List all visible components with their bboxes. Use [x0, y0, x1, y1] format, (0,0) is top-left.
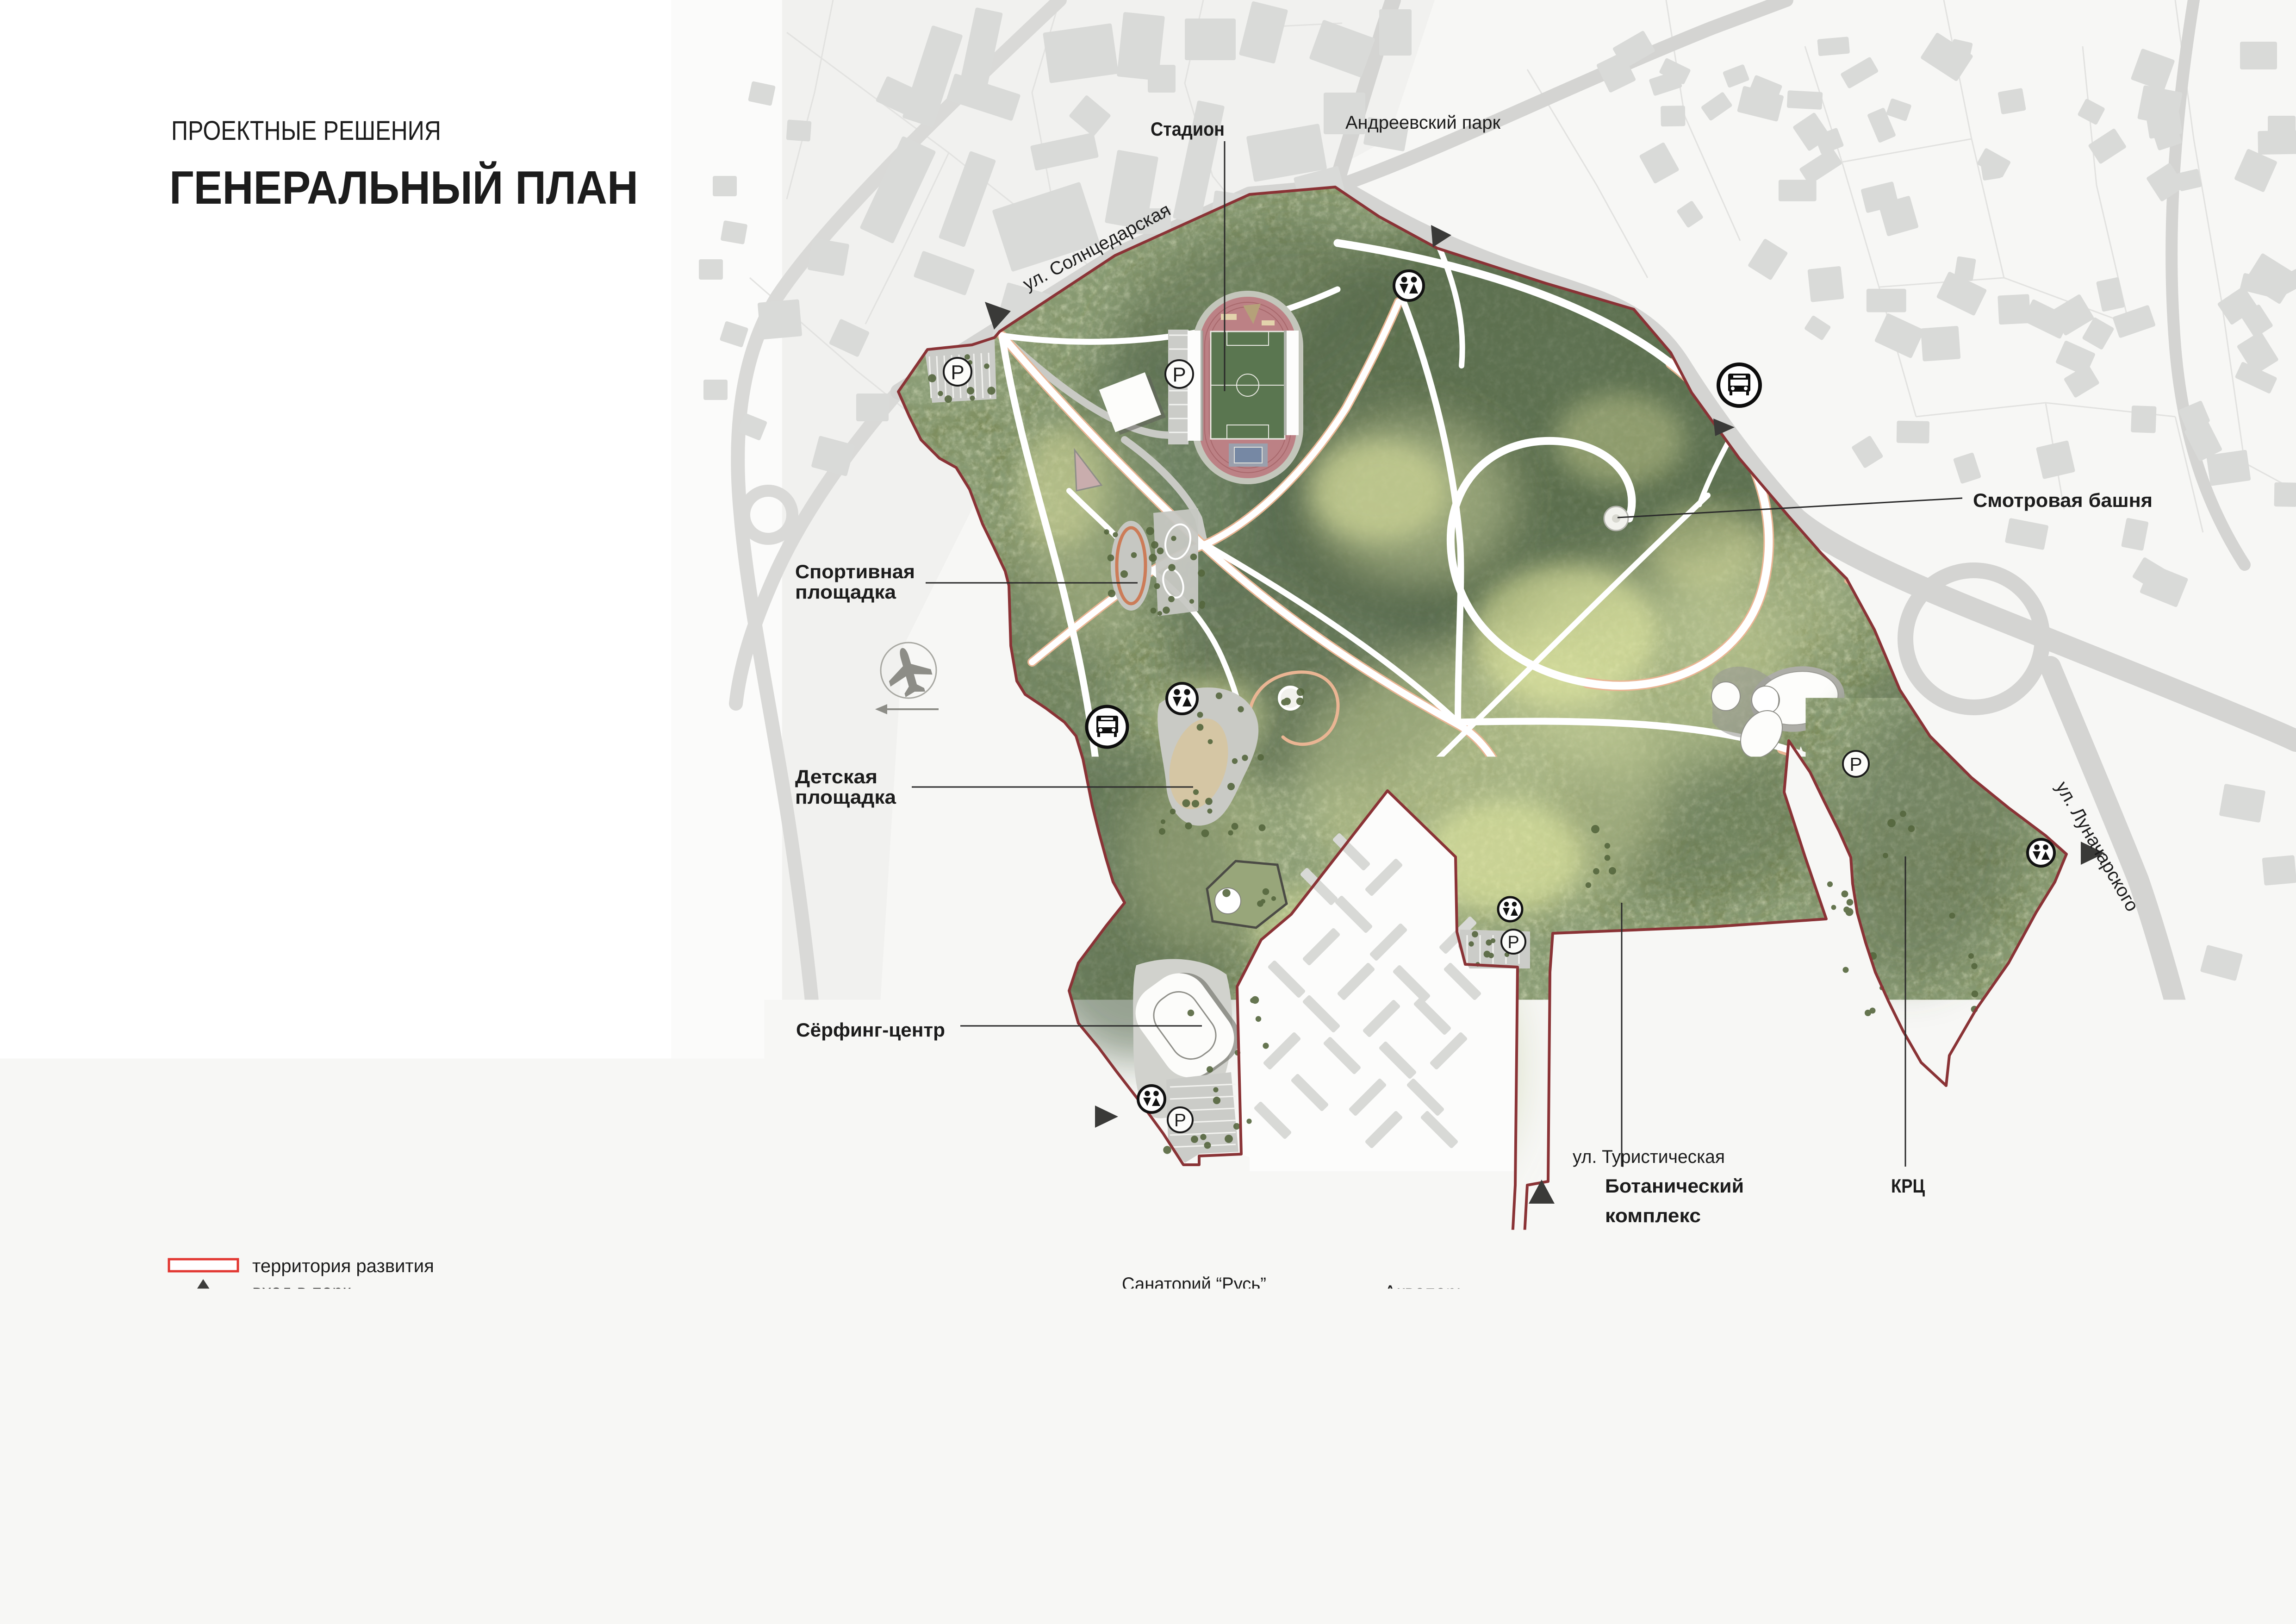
svg-text:территория развития: территория развития	[252, 1256, 434, 1276]
svg-text:P: P	[1849, 754, 1862, 775]
svg-text:вход в парк: вход в парк	[252, 1281, 351, 1302]
svg-text:ГЕНЕРАЛЬНЫЙ ПЛАН: ГЕНЕРАЛЬНЫЙ ПЛАН	[169, 162, 638, 214]
svg-text:P: P	[195, 1431, 209, 1455]
svg-text:P: P	[1174, 1111, 1186, 1131]
svg-text:Аквапарк: Аквапарк	[1384, 1282, 1465, 1302]
svg-text:КРЦ: КРЦ	[1891, 1175, 1925, 1197]
svg-text:Детская: Детская	[795, 766, 877, 787]
svg-text:площадка: площадка	[795, 786, 896, 808]
svg-text:Санаторий “Русь”: Санаторий “Русь”	[1122, 1274, 1266, 1294]
svg-text:P: P	[1507, 933, 1519, 952]
svg-text:P: P	[1172, 363, 1186, 386]
svg-text:ул. Туристическая: ул. Туристическая	[1573, 1147, 1725, 1167]
svg-text:Сёрфинг-центр: Сёрфинг-центр	[796, 1019, 945, 1041]
svg-text:Смотровая башня: Смотровая башня	[1973, 489, 2153, 511]
svg-text:площадка: площадка	[795, 581, 896, 603]
svg-text:комплекс: комплекс	[1605, 1205, 1701, 1226]
svg-text:Стадион: Стадион	[1151, 118, 1225, 140]
svg-text:Андреевский парк: Андреевский парк	[1345, 112, 1500, 133]
svg-text:ПРОЕКТНЫЕ РЕШЕНИЯ: ПРОЕКТНЫЕ РЕШЕНИЯ	[171, 116, 441, 146]
svg-text:общественный туалет: общественный туалет	[252, 1378, 442, 1399]
svg-text:остановка общественного трансп: остановка общественного транспорта	[252, 1334, 579, 1355]
svg-text:“Золотая бухта”: “Золотая бухта”	[1358, 1311, 1493, 1331]
svg-text:Ботанический: Ботанический	[1605, 1175, 1744, 1197]
svg-text:паркинг: паркинг	[252, 1433, 318, 1453]
svg-text:Спортивная: Спортивная	[795, 561, 915, 582]
svg-text:P: P	[951, 361, 964, 384]
